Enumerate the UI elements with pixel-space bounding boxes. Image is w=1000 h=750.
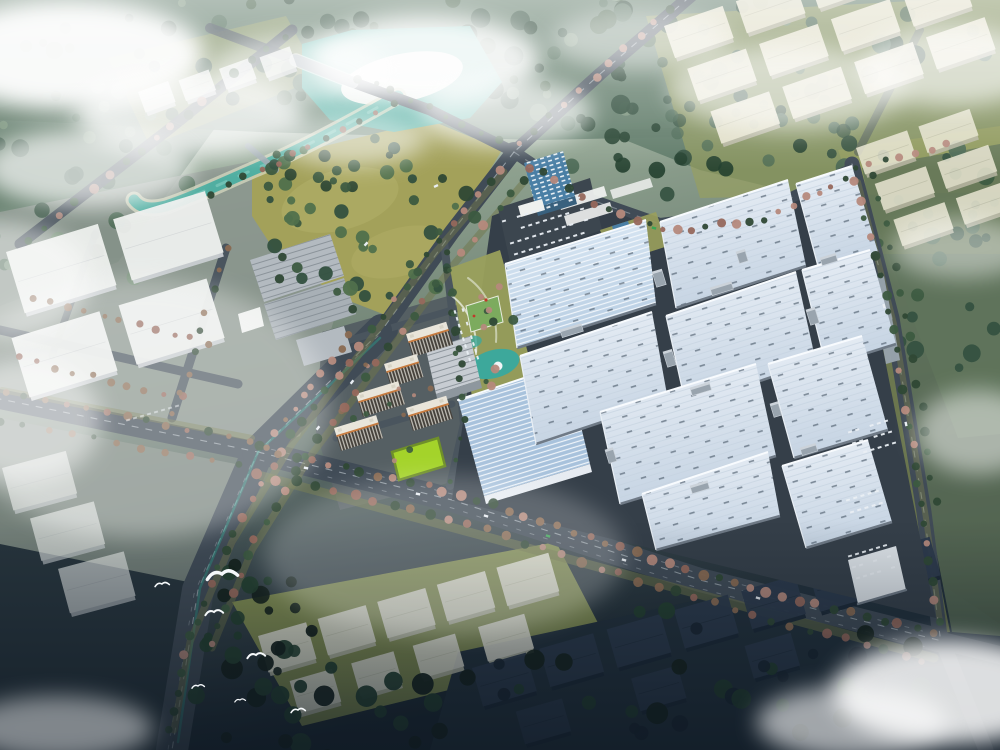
street-tree <box>384 343 393 352</box>
street-tree <box>226 181 232 187</box>
street-tree <box>340 403 350 413</box>
street-tree <box>457 249 465 257</box>
street-tree <box>335 372 343 380</box>
street-tree <box>927 475 933 481</box>
street-tree <box>271 502 281 512</box>
street-tree <box>346 359 354 367</box>
street-tree <box>461 207 468 214</box>
street-tree <box>802 192 810 200</box>
tree-canopy <box>965 302 974 311</box>
street-tree <box>894 347 900 353</box>
street-tree <box>424 252 430 258</box>
street-tree <box>498 205 504 211</box>
street-tree <box>459 394 466 401</box>
street-tree <box>436 238 442 244</box>
street-tree <box>419 298 426 305</box>
street-tree <box>507 189 515 197</box>
tree-canopy <box>264 182 273 191</box>
street-tree <box>432 280 440 288</box>
tree-canopy <box>333 288 341 296</box>
tree-canopy <box>296 273 307 284</box>
street-tree <box>354 467 364 477</box>
tree-canopy <box>334 204 348 218</box>
street-tree <box>447 268 452 273</box>
tree-canopy <box>359 290 371 302</box>
street-tree <box>354 342 364 352</box>
street-tree <box>717 218 726 227</box>
tree-canopy <box>287 196 295 204</box>
street-tree <box>372 359 380 367</box>
tree-canopy <box>397 387 401 391</box>
street-tree <box>472 237 478 243</box>
tree-canopy <box>428 386 434 392</box>
tree-canopy <box>660 187 675 202</box>
tree-canopy <box>267 239 282 254</box>
street-tree <box>896 368 902 374</box>
street-tree <box>913 480 921 488</box>
street-tree <box>884 220 890 226</box>
tree-canopy <box>319 266 333 280</box>
street-tree <box>761 217 767 223</box>
street-tree <box>867 233 874 240</box>
red-feature <box>473 315 476 318</box>
industrial-park-rendering <box>0 0 1000 750</box>
street-tree <box>368 325 377 334</box>
street-tree <box>918 501 924 507</box>
tree-canopy <box>313 172 324 183</box>
street-tree <box>328 357 336 365</box>
tree-canopy <box>508 315 518 325</box>
tree-canopy <box>392 458 397 463</box>
street-tree <box>861 215 867 221</box>
street-tree <box>458 437 462 441</box>
tree-canopy <box>387 402 392 407</box>
street-tree <box>878 272 884 278</box>
street-tree <box>550 176 558 184</box>
street-tree <box>647 221 652 226</box>
cloud <box>417 78 593 146</box>
street-tree <box>475 191 482 198</box>
tree-canopy <box>363 363 368 368</box>
street-tree <box>933 498 941 506</box>
street-tree <box>404 283 411 290</box>
street-tree <box>849 177 858 186</box>
street-tree <box>239 173 247 181</box>
street-tree <box>869 172 876 179</box>
tree-canopy <box>409 195 419 205</box>
street-tree <box>912 462 920 470</box>
tree-canopy <box>963 344 981 362</box>
cloud <box>265 475 625 635</box>
tree-canopy <box>267 196 274 203</box>
aerial-rendering <box>0 0 1000 750</box>
tree-canopy <box>368 245 377 254</box>
street-tree <box>901 406 910 415</box>
street-tree <box>871 251 881 261</box>
street-tree <box>911 441 918 448</box>
tree-canopy <box>285 169 297 181</box>
tree-canopy <box>343 281 358 296</box>
tree-canopy <box>487 382 496 391</box>
tree-canopy <box>496 283 503 290</box>
street-tree <box>896 289 904 297</box>
street-tree <box>453 351 458 356</box>
street-tree <box>343 463 350 470</box>
street-tree <box>889 325 898 334</box>
tree-canopy <box>458 360 465 367</box>
street-tree <box>791 203 798 210</box>
street-tree <box>352 389 359 396</box>
street-tree <box>673 225 683 235</box>
cloud <box>210 35 390 105</box>
tree-canopy <box>363 411 369 417</box>
tree-canopy <box>340 182 350 192</box>
street-tree <box>732 219 741 228</box>
tree-canopy <box>330 177 337 184</box>
tree-canopy <box>305 203 316 214</box>
street-tree <box>775 209 781 215</box>
street-tree <box>520 176 529 185</box>
cloud <box>277 110 427 166</box>
street-tree <box>339 345 347 353</box>
street-tree <box>225 245 231 251</box>
tree-canopy <box>408 174 417 183</box>
street-tree <box>410 312 419 321</box>
street-tree <box>380 314 386 320</box>
street-tree <box>207 191 214 198</box>
tree-canopy <box>907 312 918 323</box>
tree-canopy <box>489 317 498 326</box>
street-tree <box>454 458 459 463</box>
street-tree <box>56 212 63 219</box>
street-tree <box>885 309 891 315</box>
tree-canopy <box>452 203 459 210</box>
street-tree <box>817 191 822 196</box>
tree-canopy <box>406 260 414 268</box>
street-tree <box>487 177 496 186</box>
street-tree <box>399 328 406 335</box>
street-tree <box>565 184 574 193</box>
street-tree <box>688 227 695 234</box>
street-tree <box>856 197 865 206</box>
tree-canopy <box>348 305 357 314</box>
street-tree <box>902 313 908 319</box>
street-tree <box>456 375 463 382</box>
tree-canopy <box>292 262 303 273</box>
street-tree <box>310 481 320 491</box>
street-tree <box>843 176 849 182</box>
street-tree <box>702 224 708 230</box>
street-tree <box>892 263 900 271</box>
tree-canopy <box>350 415 357 422</box>
tree-canopy <box>436 228 443 235</box>
street-tree <box>448 292 453 297</box>
tree-canopy <box>481 324 487 330</box>
street-tree <box>329 419 336 426</box>
red-feature <box>484 298 487 301</box>
tree-canopy <box>401 413 406 418</box>
street-tree <box>912 380 921 389</box>
tree-canopy <box>275 274 284 283</box>
street-tree <box>325 462 331 468</box>
tree-canopy <box>406 446 413 453</box>
tree-canopy <box>491 365 500 374</box>
street-tree <box>444 249 450 255</box>
street-tree <box>345 331 352 338</box>
street-tree <box>361 373 370 382</box>
tree-canopy <box>486 307 492 313</box>
street-tree <box>875 196 881 202</box>
street-tree <box>478 220 488 230</box>
tree-canopy <box>478 294 484 300</box>
street-tree <box>898 385 908 395</box>
street-tree <box>217 268 222 273</box>
street-tree <box>660 227 665 232</box>
street-tree <box>882 291 892 301</box>
tree-canopy <box>911 289 924 302</box>
street-tree <box>906 332 916 342</box>
street-tree <box>374 473 383 482</box>
street-tree <box>461 416 468 423</box>
tree-canopy <box>285 211 300 226</box>
tree-canopy <box>412 393 416 397</box>
tree-canopy <box>438 174 447 183</box>
tree-canopy <box>335 226 347 238</box>
tree-canopy <box>278 253 287 262</box>
street-tree <box>745 218 753 226</box>
street-tree <box>633 216 642 225</box>
street-tree <box>616 209 625 218</box>
street-tree <box>909 354 918 363</box>
street-tree <box>451 220 458 227</box>
street-tree <box>606 206 612 212</box>
street-tree <box>452 331 457 336</box>
tree-canopy <box>955 363 964 372</box>
tree-canopy <box>468 211 481 224</box>
street-tree <box>391 296 397 302</box>
street-tree <box>887 245 893 251</box>
street-tree <box>828 184 833 189</box>
street-tree <box>413 268 422 277</box>
tree-canopy <box>459 186 475 202</box>
street-tree <box>591 201 598 208</box>
